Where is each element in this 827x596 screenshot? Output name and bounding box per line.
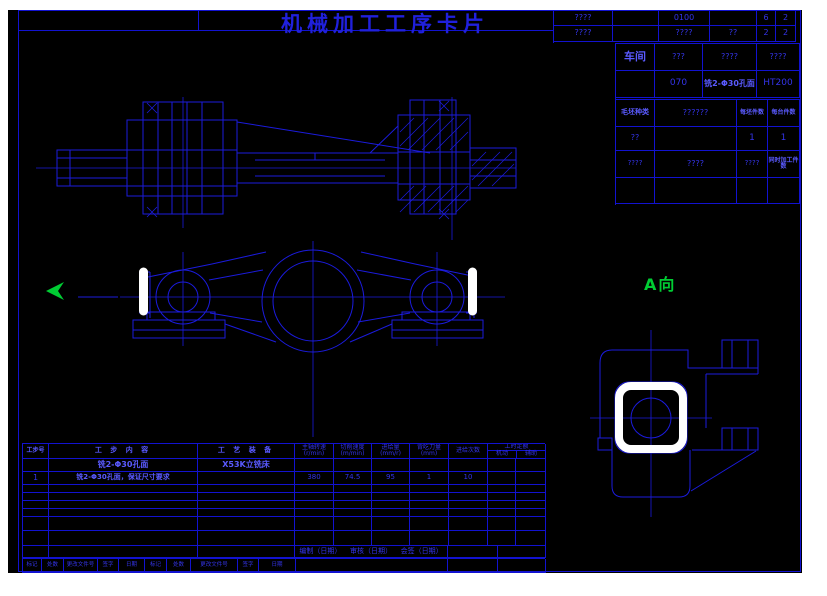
revision-cell: 标记 [145,559,167,573]
empty-cell [488,493,516,501]
spindle-speed-value: 380 [295,472,334,485]
empty-cell [49,509,198,517]
empty-cell [49,485,198,493]
empty-cell [449,509,488,517]
empty-cell [198,509,295,517]
empty-cell [372,459,410,472]
empty-cell [449,485,488,493]
empty-cell [198,546,295,558]
empty-cell [198,485,295,493]
empty-cell [49,493,198,501]
empty-cell [448,546,498,558]
empty-cell [198,493,295,501]
passes-value: 10 [449,472,488,485]
empty-cell [372,485,410,493]
empty-cell [488,531,516,546]
empty-cell [295,517,334,531]
empty-cell [410,517,449,531]
prepare-label: 编制（日期） [299,548,341,555]
empty-cell [516,493,546,501]
process-step-table: 工步号 工 步 内 容 工 艺 装 备 主轴转速(r/min) 切削速度(m/m… [22,443,545,545]
empty-cell [23,517,49,531]
audit-label: 审核（日期） [350,548,392,555]
empty-cell [49,517,198,531]
empty-cell [498,546,546,558]
empty-cell [449,501,488,509]
revision-cell: 标记 [23,559,42,573]
empty-cell [488,485,516,493]
empty-cell [295,509,334,517]
empty-cell [449,531,488,546]
empty-cell [23,485,49,493]
empty-cell [516,509,546,517]
time-machine-subheader: 机动 [488,451,517,458]
empty-cell [334,509,372,517]
empty-cell [23,493,49,501]
empty-cell [23,459,49,472]
empty-cell [516,472,546,485]
empty-cell [296,559,448,573]
revision-cell: 签字 [238,559,259,573]
cut-depth-header: 背吃刀量(mm) [410,444,449,459]
revision-cell: 更改文件号 [191,559,238,573]
operation-row-machine: X53K立铣床 [198,459,295,472]
empty-cell [23,509,49,517]
empty-cell [295,485,334,493]
empty-cell [23,546,49,558]
empty-cell [448,559,498,573]
empty-cell [488,509,516,517]
empty-cell [295,459,334,472]
a-direction-view [590,330,758,517]
step-number: 1 [23,472,49,485]
empty-cell [372,493,410,501]
empty-cell [372,531,410,546]
cutting-speed-value: 74.5 [334,472,372,485]
empty-cell [410,531,449,546]
empty-cell [334,517,372,531]
empty-cell [295,493,334,501]
revision-cell: 日期 [119,559,145,573]
section-a-arrow-icon [46,282,64,300]
empty-cell [198,472,295,485]
empty-cell [488,472,516,485]
empty-cell [49,501,198,509]
empty-cell [516,531,546,546]
empty-cell [498,559,546,573]
countersign-label: 会签（日期） [401,548,443,555]
empty-cell [295,531,334,546]
empty-cell [334,493,372,501]
revision-cell: 日期 [259,559,296,573]
empty-cell [334,531,372,546]
signature-labels: 编制（日期） 审核（日期） 会签（日期） [295,546,448,558]
cut-depth-value: 1 [410,472,449,485]
empty-cell [488,501,516,509]
spindle-speed-header: 主轴转速(r/min) [295,444,334,459]
time-aux-subheader: 辅助 [517,451,545,458]
empty-cell [334,459,372,472]
empty-cell [449,493,488,501]
section-hatching [400,118,514,212]
empty-cell [23,531,49,546]
empty-cell [410,509,449,517]
empty-cell [198,501,295,509]
empty-cell [410,459,449,472]
view-direction-label: A向 [644,271,676,295]
step-content-header: 工 步 内 容 [49,444,198,459]
empty-cell [516,501,546,509]
empty-cell [372,501,410,509]
empty-cell [198,531,295,546]
empty-cell [23,501,49,509]
time-quota-header: 工时定额 机动 辅助 [488,444,546,459]
empty-cell [488,517,516,531]
empty-cell [372,509,410,517]
empty-cell [516,459,546,472]
empty-cell [488,459,516,472]
empty-cell [49,546,198,558]
empty-cell [410,501,449,509]
empty-cell [334,485,372,493]
feed-rate-value: 95 [372,472,410,485]
empty-cell [410,485,449,493]
empty-cell [449,459,488,472]
operation-row-name: 铣2-Φ30孔面 [49,459,198,472]
empty-cell [198,517,295,531]
empty-cell [449,517,488,531]
feed-rate-header: 进给量(mm/r) [372,444,410,459]
step-no-header: 工步号 [23,444,49,459]
empty-cell [295,501,334,509]
process-card-sheet: { "title": "机械加工工序卡片", "top_strip": { "r… [0,0,827,596]
empty-cell [372,517,410,531]
revision-cell: 处数 [167,559,191,573]
empty-cell [334,501,372,509]
revision-strip: 标记 处数 更改文件号 签字 日期 标记 处数 更改文件号 签字 日期 [22,558,545,573]
top-section-view [36,97,516,240]
equipment-header: 工 艺 装 备 [198,444,295,459]
cutting-speed-header: 切削速度(m/min) [334,444,372,459]
step-content: 铣2-Φ30孔面，保证尺寸要求 [49,472,198,485]
empty-cell [516,517,546,531]
passes-header: 进给次数 [449,444,488,459]
signature-row: 编制（日期） 审核（日期） 会签（日期） [22,545,545,558]
revision-cell: 签字 [98,559,119,573]
revision-cell: 处数 [42,559,64,573]
empty-cell [410,493,449,501]
empty-cell [516,485,546,493]
revision-cell: 更改文件号 [64,559,98,573]
empty-cell [49,531,198,546]
